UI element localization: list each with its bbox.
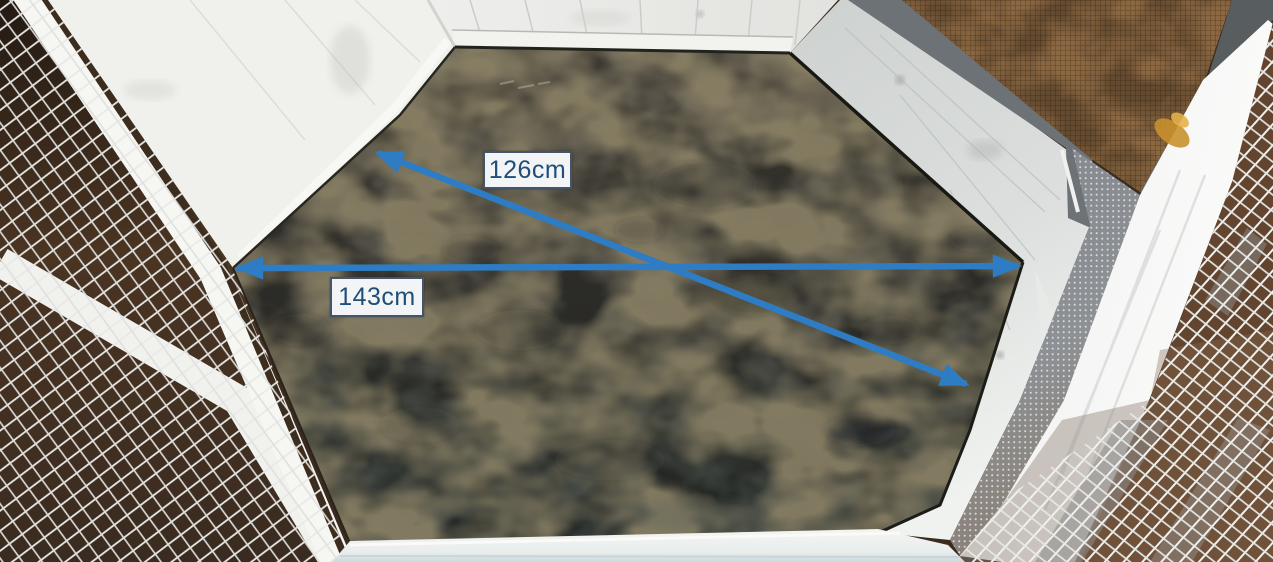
hutch-floor-photo: 126cm 143cm (0, 0, 1273, 562)
photo-scene (0, 0, 1273, 562)
measurement-label-width: 143cm (330, 277, 424, 317)
measurement-label-diagonal: 126cm (483, 151, 572, 189)
width-measurement-arrow (238, 266, 1018, 268)
back-wall (428, 0, 838, 53)
